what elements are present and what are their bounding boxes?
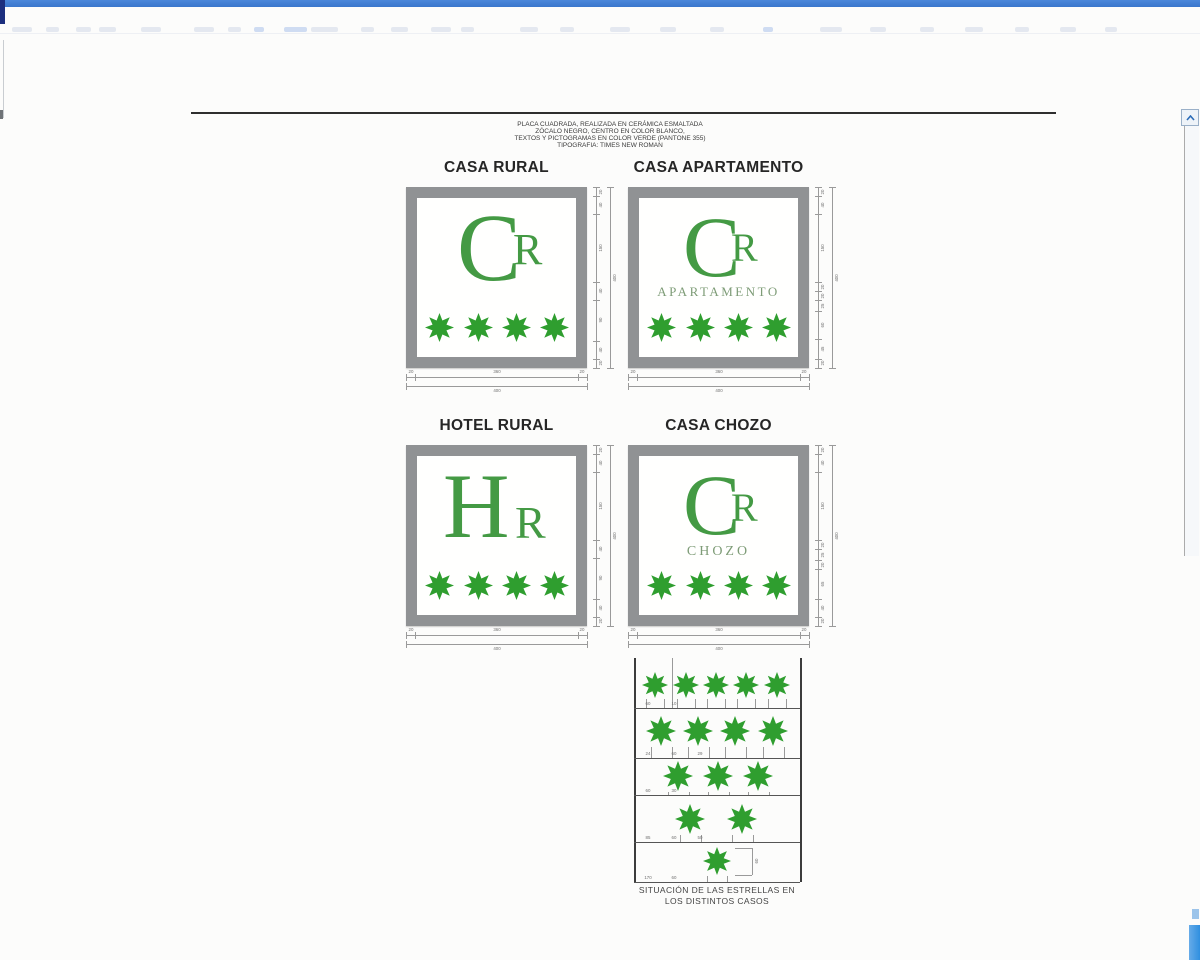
dimension-tick <box>637 632 638 639</box>
diagram-row-divider <box>634 758 800 759</box>
rating-star <box>464 571 493 600</box>
dimension-tick <box>768 699 769 708</box>
dimension-tick <box>607 368 614 369</box>
diagram-star <box>703 672 729 698</box>
dimension-tick <box>637 374 638 381</box>
dimension-label: 40 <box>599 461 603 466</box>
rating-star <box>724 571 753 600</box>
dimension-tick <box>815 560 822 561</box>
dimension-label: 60 <box>672 836 677 840</box>
dimension-label: 60 <box>672 876 677 880</box>
dimension-tick <box>593 445 600 446</box>
menu-item-ghost <box>46 27 59 32</box>
diagram-row-divider <box>634 882 800 883</box>
plaque-face: HR <box>417 456 576 615</box>
rating-star <box>762 313 791 342</box>
dimension-line <box>406 635 587 636</box>
rating-star <box>647 313 676 342</box>
dimension-label: 400 <box>715 647 722 651</box>
menu-item-ghost <box>1105 27 1117 32</box>
dimension-tick <box>800 632 801 639</box>
chevron-up-icon <box>1186 115 1195 121</box>
plaque-frame: CRCHOZO <box>628 445 809 626</box>
scrollbar-track[interactable] <box>1184 126 1199 556</box>
plaque-subtitle: APARTAMENTO <box>639 284 798 300</box>
dimension-tick <box>607 445 614 446</box>
dimension-tick <box>708 792 709 795</box>
dimension-tick <box>755 699 756 708</box>
dimension-tick <box>809 383 810 390</box>
dimension-label: 20 <box>599 619 603 624</box>
dimension-tick <box>815 339 822 340</box>
dimension-label: 20 <box>580 628 585 632</box>
menubar-divider <box>0 33 1200 34</box>
dimension-label: 20 <box>599 189 603 194</box>
dimension-label: 400 <box>493 389 500 393</box>
dimension-label: 40 <box>599 289 603 294</box>
dimension-label: 400 <box>613 274 617 281</box>
dimension-tick <box>815 300 822 301</box>
dimension-tick <box>593 472 600 473</box>
menu-item-ghost <box>194 27 214 32</box>
menu-item-ghost <box>141 27 161 32</box>
dimension-tick <box>587 632 588 639</box>
dimension-tick <box>829 626 836 627</box>
monogram-letter-secondary: R <box>513 228 542 272</box>
star-icon <box>727 804 757 834</box>
dimension-tick <box>815 196 822 197</box>
dimension-tick <box>815 540 822 541</box>
dimension-tick <box>815 282 822 283</box>
diagram-star <box>764 672 790 698</box>
dimension-tick <box>593 214 600 215</box>
menu-item-ghost <box>763 27 773 32</box>
dimension-tick <box>593 341 600 342</box>
star-icon <box>502 571 531 600</box>
star-icon <box>464 313 493 342</box>
star-icon <box>540 571 569 600</box>
panel-edge-mark <box>0 110 3 119</box>
star-icon <box>724 313 753 342</box>
dimension-tick <box>415 632 416 639</box>
dimension-label: 150 <box>821 244 825 251</box>
menu-item-ghost <box>660 27 676 32</box>
dimension-label: 20 <box>408 370 413 374</box>
monogram-letter-secondary: R <box>515 500 546 546</box>
star-icon <box>464 571 493 600</box>
dimension-tick <box>578 632 579 639</box>
dimension-tick <box>784 747 785 758</box>
menu-item-ghost <box>560 27 574 32</box>
dimension-tick <box>815 214 822 215</box>
dimension-label: 20 <box>821 284 825 289</box>
menu-item-ghost <box>254 27 264 32</box>
plaque-frame: CR <box>406 187 587 368</box>
plaque-subtitle: CHOZO <box>639 544 798 560</box>
dimension-tick <box>593 282 600 283</box>
dimension-tick <box>709 747 710 758</box>
dimension-label: 90 <box>599 318 603 323</box>
dimension-tick <box>406 641 407 648</box>
dimension-tick <box>587 641 588 648</box>
dimension-label: 360 <box>493 628 500 632</box>
dimension-tick <box>578 374 579 381</box>
monogram-letter-main: C <box>457 200 521 296</box>
dimension-label: 29 <box>698 752 703 756</box>
dimension-label: 20 <box>802 628 807 632</box>
dimension-tick <box>727 876 728 882</box>
dimension-tick <box>815 626 822 627</box>
dimension-line <box>406 644 587 645</box>
dimension-label: 20 <box>821 361 825 366</box>
dimension-label: 60 <box>672 752 677 756</box>
plaque-face: CR <box>417 198 576 357</box>
rating-star <box>502 313 531 342</box>
plaque-face: CRCHOZO <box>639 456 798 615</box>
star-icon <box>703 672 729 698</box>
dimension-tick <box>593 540 600 541</box>
dimension-line <box>832 445 833 626</box>
plaque-frame: HR <box>406 445 587 626</box>
diagram-row-divider <box>634 795 800 796</box>
dimension-tick <box>593 196 600 197</box>
rating-star <box>724 313 753 342</box>
plaque-frame: CRAPARTAMENTO <box>628 187 809 368</box>
menu-item-ghost <box>920 27 934 32</box>
dimension-tick <box>628 641 629 648</box>
diagram-caption-line1: SITUACIÓN DE LAS ESTRELLAS EN <box>634 885 800 895</box>
diagram-star <box>743 761 773 791</box>
dimension-label: 360 <box>493 370 500 374</box>
dimension-tick <box>680 835 681 842</box>
star-icon <box>762 571 791 600</box>
rating-star <box>425 313 454 342</box>
dimension-label: 40 <box>821 605 825 610</box>
spec-header-line: PLACA CUADRADA, REALIZADA EN CERÁMICA ES… <box>400 121 820 128</box>
window-titlebar <box>0 0 1200 7</box>
dimension-tick <box>587 383 588 390</box>
dimension-label: 20 <box>821 293 825 298</box>
dimension-tick <box>406 374 407 381</box>
diagram-star <box>703 761 733 791</box>
menu-item-ghost <box>1015 27 1029 32</box>
dimension-label: 60 <box>821 323 825 328</box>
dimension-label: 400 <box>493 647 500 651</box>
star-icon <box>646 716 676 746</box>
document-top-rule <box>191 112 1056 114</box>
monogram-letter-secondary: R <box>731 228 758 268</box>
star-icon <box>675 804 705 834</box>
plaque-title: CASA CHOZO <box>628 417 809 435</box>
dimension-tick <box>406 383 407 390</box>
dimension-tick <box>593 626 600 627</box>
dimension-label: 40 <box>821 203 825 208</box>
menu-item-ghost <box>228 27 241 32</box>
menu-item-ghost <box>76 27 91 32</box>
dimension-tick <box>587 374 588 381</box>
dimension-tick <box>628 632 629 639</box>
dimension-label: 25 <box>821 303 825 308</box>
dimension-label: 20 <box>580 370 585 374</box>
dimension-label: 40 <box>821 461 825 466</box>
plaque-title: HOTEL RURAL <box>406 417 587 435</box>
star-icon <box>647 313 676 342</box>
dimension-label: 400 <box>613 532 617 539</box>
star-icon <box>703 761 733 791</box>
dimension-label: 60 <box>755 859 759 864</box>
rating-star <box>686 571 715 600</box>
dimension-label: 50 <box>698 836 703 840</box>
dimension-label: 40 <box>599 347 603 352</box>
diagram-star <box>642 672 668 698</box>
dimension-tick <box>746 747 747 758</box>
menu-item-ghost <box>461 27 474 32</box>
menu-item-ghost <box>391 27 408 32</box>
dimension-label: 85 <box>646 836 651 840</box>
rating-star <box>762 571 791 600</box>
dimension-tick <box>729 792 730 795</box>
menu-item-ghost <box>820 27 842 32</box>
dimension-label: 20 <box>821 562 825 567</box>
dimension-line <box>610 187 611 368</box>
star-icon <box>673 672 699 698</box>
dimension-line <box>628 644 809 645</box>
diagram-row-divider <box>634 708 800 709</box>
star-icon <box>502 313 531 342</box>
dimension-label: 10 <box>672 702 677 706</box>
dimension-label: 150 <box>821 502 825 509</box>
dimension-tick <box>753 835 754 842</box>
star-icon <box>683 716 713 746</box>
rating-star <box>647 571 676 600</box>
dimension-tick <box>809 374 810 381</box>
menu-item-ghost <box>99 27 116 32</box>
dimension-label: 60 <box>646 702 651 706</box>
dimension-label: 400 <box>715 389 722 393</box>
scrollbar-thumb[interactable] <box>1189 925 1200 960</box>
dimension-label: 20 <box>821 447 825 452</box>
dimension-tick <box>737 699 738 708</box>
dimension-tick <box>593 599 600 600</box>
window-corner-accent <box>0 0 5 24</box>
dimension-tick <box>607 187 614 188</box>
dimension-tick <box>815 472 822 473</box>
dimension-label: 24 <box>646 752 651 756</box>
spec-header-line: TIPOGRAFIA: TIMES NEW ROMAN <box>400 142 820 149</box>
dimension-tick <box>800 374 801 381</box>
spec-header: PLACA CUADRADA, REALIZADA EN CERÁMICA ES… <box>400 121 820 149</box>
monogram-letter-main: H <box>443 460 509 552</box>
dimension-label: 20 <box>599 361 603 366</box>
dimension-tick <box>607 626 614 627</box>
star-icon <box>425 571 454 600</box>
dimension-tick <box>815 445 822 446</box>
dimension-tick <box>664 699 665 708</box>
dimension-tick <box>815 187 822 188</box>
menu-item-ghost <box>965 27 983 32</box>
dimension-tick <box>829 445 836 446</box>
dimension-tick <box>707 876 708 882</box>
dimension-label: 20 <box>821 189 825 194</box>
star-icon <box>663 761 693 791</box>
dimension-tick <box>725 747 726 758</box>
dimension-tick <box>593 454 600 455</box>
dimension-label: 40 <box>599 203 603 208</box>
menu-item-ghost <box>610 27 630 32</box>
dimension-tick <box>688 747 689 758</box>
star-icon <box>724 571 753 600</box>
plaque-title: CASA RURAL <box>406 159 587 177</box>
scrollbar-fragment <box>1192 909 1199 919</box>
dimension-line <box>628 635 809 636</box>
dimension-tick <box>786 699 787 708</box>
dimension-line <box>628 386 809 387</box>
dimension-tick <box>707 699 708 708</box>
rating-star <box>686 313 715 342</box>
dimension-label: 150 <box>599 502 603 509</box>
dimension-label: 20 <box>630 628 635 632</box>
plaque-face: CRAPARTAMENTO <box>639 198 798 357</box>
dimension-label: 20 <box>408 628 413 632</box>
dimension-label: 20 <box>821 542 825 547</box>
dimension-tick <box>725 699 726 708</box>
scrollbar-up-button[interactable] <box>1181 109 1199 126</box>
diagram-star <box>733 672 759 698</box>
dimension-label: 20 <box>599 447 603 452</box>
diagram-star <box>673 672 699 698</box>
rating-star <box>540 313 569 342</box>
dimension-tick <box>769 792 770 795</box>
dimension-tick <box>815 549 822 550</box>
dimension-line <box>628 377 809 378</box>
dimension-tick <box>593 558 600 559</box>
dimension-tick <box>809 632 810 639</box>
menu-item-ghost <box>710 27 724 32</box>
dimension-tick <box>593 300 600 301</box>
dimension-tick <box>732 835 733 842</box>
menu-item-ghost <box>1060 27 1076 32</box>
dimension-label: 90 <box>599 576 603 581</box>
diagram-star <box>703 847 731 875</box>
diagram-star <box>727 804 757 834</box>
spec-header-line: TEXTOS Y PICTOGRAMAS EN COLOR VERDE (PAN… <box>400 135 820 142</box>
diagram-star <box>720 716 750 746</box>
menu-item-ghost <box>12 27 32 32</box>
dimension-tick <box>593 368 600 369</box>
dimension-tick <box>829 368 836 369</box>
dimension-tick <box>735 875 752 876</box>
dimension-tick <box>815 291 822 292</box>
panel-edge-line <box>3 40 4 118</box>
application-window: PLACA CUADRADA, REALIZADA EN CERÁMICA ES… <box>0 0 1200 960</box>
dimension-tick <box>815 311 822 312</box>
star-icon <box>540 313 569 342</box>
dimension-label: 60 <box>646 789 651 793</box>
dimension-tick <box>651 747 652 758</box>
dimension-label: 20 <box>630 370 635 374</box>
diagram-star <box>758 716 788 746</box>
dimension-line <box>610 445 611 626</box>
dimension-label: 170 <box>644 876 651 880</box>
star-icon <box>686 313 715 342</box>
rating-star <box>540 571 569 600</box>
menu-item-ghost <box>361 27 374 32</box>
rating-star <box>425 571 454 600</box>
dimension-tick <box>628 374 629 381</box>
dimension-label: 360 <box>715 628 722 632</box>
dimension-tick <box>815 569 822 570</box>
dimension-tick <box>763 747 764 758</box>
dimension-tick <box>695 699 696 708</box>
diagram-row-divider <box>634 842 800 843</box>
star-icon <box>686 571 715 600</box>
dimension-tick <box>628 383 629 390</box>
spec-header-line: ZÓCALO NEGRO, CENTRO EN COLOR BLANCO, <box>400 128 820 135</box>
diagram-star <box>675 804 705 834</box>
star-icon <box>743 761 773 791</box>
dimension-line <box>406 377 587 378</box>
dimension-label: 360 <box>715 370 722 374</box>
menu-item-ghost <box>870 27 886 32</box>
dimension-label: 400 <box>835 532 839 539</box>
monogram-letter-secondary: R <box>731 488 758 528</box>
dimension-label: 45 <box>821 346 825 351</box>
dimension-line <box>752 848 753 875</box>
star-icon <box>642 672 668 698</box>
dimension-tick <box>735 848 752 849</box>
menu-item-ghost <box>284 27 307 32</box>
star-icon <box>425 313 454 342</box>
menu-item-ghost <box>311 27 338 32</box>
diagram-star <box>646 716 676 746</box>
diagram-border-right <box>800 658 802 882</box>
dimension-label: 40 <box>599 547 603 552</box>
dimension-tick <box>748 792 749 795</box>
dimension-label: 400 <box>835 274 839 281</box>
star-icon <box>762 313 791 342</box>
star-icon <box>764 672 790 698</box>
dimension-label: 20 <box>821 619 825 624</box>
dimension-tick <box>668 792 669 795</box>
dimension-tick <box>406 632 407 639</box>
diagram-star <box>683 716 713 746</box>
dimension-label: 20 <box>802 370 807 374</box>
dimension-tick <box>809 641 810 648</box>
menu-item-ghost <box>520 27 538 32</box>
dimension-line <box>406 386 587 387</box>
dimension-tick <box>689 792 690 795</box>
star-icon <box>703 847 731 875</box>
menu-item-ghost <box>431 27 451 32</box>
dimension-label: 40 <box>599 605 603 610</box>
star-icon <box>733 672 759 698</box>
dimension-label: 25 <box>821 552 825 557</box>
rating-star <box>502 571 531 600</box>
star-icon <box>647 571 676 600</box>
dimension-label: 65 <box>821 582 825 587</box>
star-icon <box>758 716 788 746</box>
dimension-tick <box>815 368 822 369</box>
dimension-tick <box>593 187 600 188</box>
star-icon <box>720 716 750 746</box>
rating-star <box>464 313 493 342</box>
dimension-tick <box>677 699 678 708</box>
diagram-star <box>663 761 693 791</box>
dimension-label: 30 <box>672 789 677 793</box>
plaque-title: CASA APARTAMENTO <box>628 159 809 177</box>
dimension-tick <box>415 374 416 381</box>
dimension-tick <box>815 454 822 455</box>
